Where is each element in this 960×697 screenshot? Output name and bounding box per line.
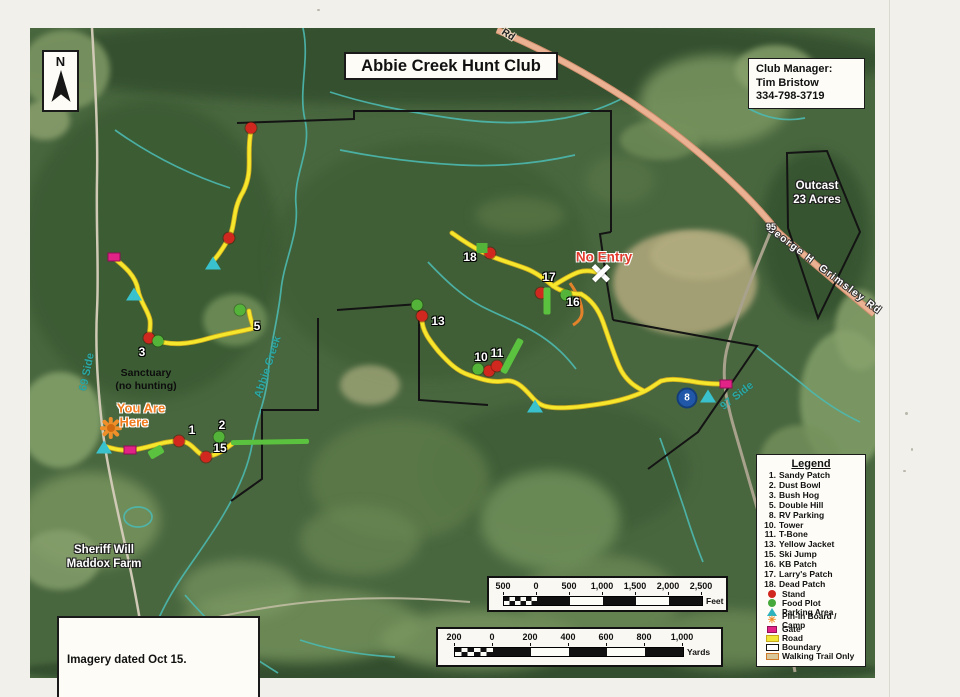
scale-tick-label: 600 [598, 632, 613, 642]
scale-segment [493, 648, 531, 656]
boundary-icon [765, 644, 779, 651]
walking-trail-icon [766, 653, 779, 660]
north-arrow-box: N [42, 50, 79, 112]
scale-segment [636, 597, 669, 605]
legend-item-number: 18. [760, 580, 776, 590]
scale-bar [503, 596, 703, 606]
scale-tick-mark [568, 643, 569, 646]
scale-bar-feet: 50005001,0001,5002,0002,500Feet [487, 576, 728, 612]
scale-tick-label: 200 [522, 632, 537, 642]
scale-tick-label: 1,000 [591, 581, 614, 591]
scale-segment [669, 597, 702, 605]
scale-unit-label: Feet [706, 596, 723, 606]
scale-tick-mark [536, 592, 537, 595]
scale-segment [570, 597, 603, 605]
scan-speck [903, 470, 906, 472]
stand-icon [768, 590, 776, 598]
scale-unit-label: Yards [687, 647, 710, 657]
scale-checker-segment [504, 597, 537, 605]
scale-tick-label: 500 [495, 581, 510, 591]
paper-crease [889, 0, 890, 697]
scale-tick-label: 2,500 [690, 581, 713, 591]
scale-tick-mark [635, 592, 636, 595]
gate-icon [765, 626, 779, 633]
scan-speck [911, 448, 913, 451]
scale-tick-mark [644, 643, 645, 646]
scale-segment [569, 648, 607, 656]
scale-tick-mark [668, 592, 669, 595]
north-arrow-icon [48, 69, 74, 105]
scale-tick-label: 2,000 [657, 581, 680, 591]
legend-item: 18.Dead Patch [760, 580, 862, 590]
gate-icon [767, 626, 777, 633]
legend-title: Legend [760, 457, 862, 471]
scale-tick-mark [701, 592, 702, 595]
north-label: N [44, 54, 77, 69]
scale-tick-label: 0 [489, 632, 494, 642]
road-icon [765, 635, 779, 642]
scale-segment [531, 648, 569, 656]
scale-segment [537, 597, 570, 605]
club-manager-box: Club Manager: Tim Bristow 334-798-3719 [748, 58, 865, 109]
scale-segment [645, 648, 683, 656]
scale-segment [607, 648, 645, 656]
legend-symbol-row: ✳Pin-In Board / Camp [760, 617, 862, 626]
club-manager-name: Tim Bristow [756, 77, 857, 91]
scale-tick-label: 200 [446, 632, 461, 642]
legend-symbol-label: Walking Trail Only [782, 652, 854, 661]
scale-tick-label: 400 [560, 632, 575, 642]
scale-tick-label: 800 [636, 632, 651, 642]
boundary-icon [766, 644, 779, 651]
aerial-photo [30, 28, 875, 678]
scanned-map-page: 8 Sanctuary(no hunting)You AreHereNo Ent… [0, 0, 960, 697]
legend-item-list: 1.Sandy Patch2.Dust Bowl3.Bush Hog5.Doub… [760, 471, 862, 590]
update-note-box: Imagery dated Oct 15. Map updated Octobe… [57, 616, 260, 697]
club-manager-phone: 334-798-3719 [756, 90, 857, 104]
pin-board-icon: ✳ [768, 617, 776, 625]
scale-tick-mark [454, 643, 455, 646]
imagery-date: Imagery dated Oct 15. [67, 653, 250, 668]
scan-speck [317, 9, 320, 11]
scale-tick-label: 1,000 [671, 632, 694, 642]
map-artwork [30, 28, 875, 678]
scale-tick-mark [569, 592, 570, 595]
scale-tick-mark [503, 592, 504, 595]
scale-tick-mark [606, 643, 607, 646]
walking-trail-icon [765, 653, 779, 660]
food-plot-icon [768, 599, 776, 607]
scale-checker-segment [455, 648, 493, 656]
scale-tick-label: 0 [533, 581, 538, 591]
scale-tick-mark [492, 643, 493, 646]
scale-tick-label: 1,500 [624, 581, 647, 591]
scale-tick-label: 500 [561, 581, 576, 591]
legend-symbol-row: Walking Trail Only [760, 652, 862, 661]
food-plot-icon [765, 599, 779, 607]
scale-tick-mark [530, 643, 531, 646]
stand-icon [765, 590, 779, 598]
scale-segment [603, 597, 636, 605]
scan-speck [905, 412, 908, 415]
legend: Legend 1.Sandy Patch2.Dust Bowl3.Bush Ho… [756, 454, 866, 667]
scale-tick-mark [602, 592, 603, 595]
club-manager-label: Club Manager: [756, 63, 857, 77]
legend-symbol-list: StandFood PlotParking Area✳Pin-In Board … [760, 590, 862, 661]
road-icon [766, 635, 779, 642]
pin-board-icon: ✳ [765, 617, 779, 625]
map-title: Abbie Creek Hunt Club [344, 52, 558, 80]
scale-bar [454, 647, 684, 657]
scale-tick-mark [682, 643, 683, 646]
scale-bar-yards: 20002004006008001,000Yards [436, 627, 723, 667]
